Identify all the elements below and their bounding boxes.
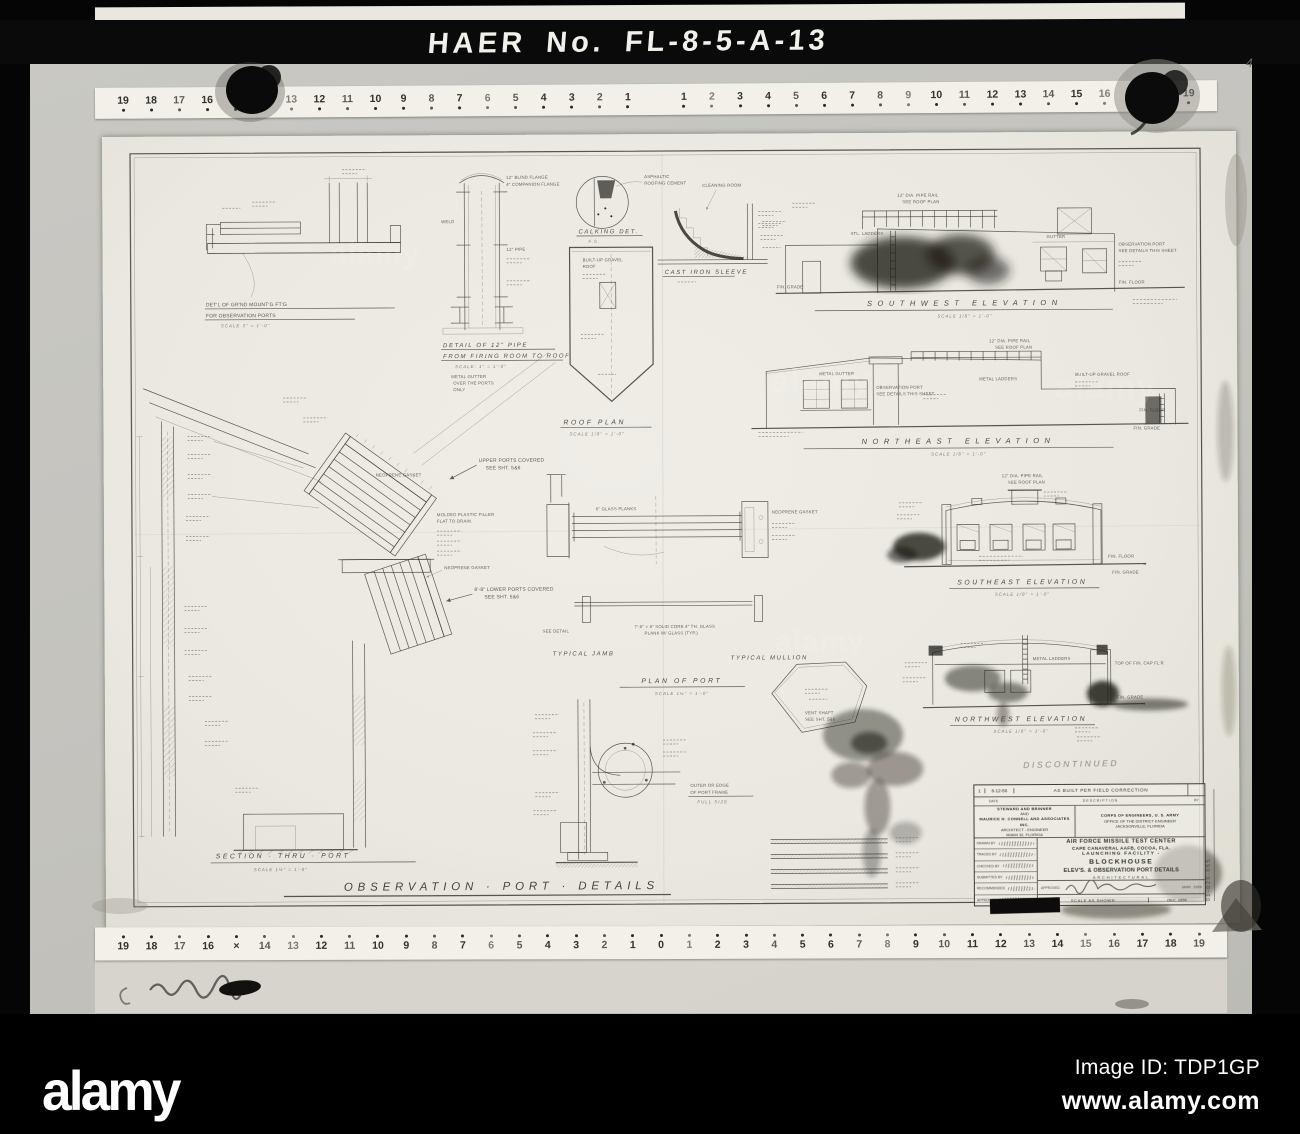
note-fin-floor-sw: FIN. FLOOR	[1119, 280, 1145, 285]
ruler-tick-dot	[542, 106, 545, 109]
note-gutter: GUTTER	[1046, 234, 1065, 239]
ruler-tick-dot	[234, 108, 237, 111]
ruler-tick-dot	[829, 934, 832, 937]
note-see-details-ne: SEE DETAILS THIS SHEET	[876, 391, 934, 396]
pipe-detail-title-1: DETAIL OF 12" PIPE	[443, 343, 528, 349]
ruler-tick-dot	[1169, 933, 1172, 936]
ruler-tick-dot	[682, 105, 685, 108]
ruler-number: 19	[1175, 87, 1203, 104]
note-upper-ports-covered: UPPER PORTS COVERED	[479, 458, 545, 464]
note-full-size: FULL SIZE	[697, 799, 728, 804]
plan-of-port: 6" GLASS PLANKS NEOPRENE GASKET SEE DETA…	[542, 473, 819, 696]
note-neoprene-plan: NEOPRENE GASKET	[772, 509, 818, 514]
ruler-number: 3	[558, 91, 586, 108]
ruler-number: 5	[782, 90, 810, 107]
ruler-tick-dot	[914, 933, 917, 936]
ruler-number: 14	[251, 935, 279, 952]
ruler-number: 7	[845, 933, 873, 950]
ruler-tick-dot	[376, 935, 379, 938]
ruler-tick-dot	[626, 105, 629, 108]
signature-row: TRACED BY	[975, 849, 1037, 861]
ruler-tick-dot	[886, 933, 889, 936]
ruler-number: 17	[166, 935, 194, 952]
ruler-tick-dot	[603, 934, 606, 937]
ruler-tick-dot	[430, 107, 433, 110]
corner-pencil-mark: 4	[1246, 56, 1253, 70]
ruler-number: 9	[902, 933, 930, 950]
ruler-tick-dot	[991, 103, 994, 106]
ruler-number: 10	[361, 93, 389, 110]
note-vent-shaft: VENT SHAFT	[805, 710, 834, 715]
ruler-number: 9	[389, 93, 417, 110]
ruler-tick-dot	[262, 108, 265, 111]
signature-scribble	[1007, 886, 1035, 891]
ruler-tick-dot	[1198, 933, 1201, 936]
ruler-number: 13	[277, 93, 305, 110]
ruler-number: 10	[922, 89, 950, 106]
note-upper-see-sheet: SEE SHT. 5&6	[486, 465, 521, 471]
sheet-main-title: OBSERVATION · PORT · DETAILS	[344, 880, 659, 894]
note-lower-ports-covered: 8'-8" LOWER PORTS COVERED	[474, 587, 554, 593]
photo-scale-ruler-bottom: 19181716×1413121110987654321012345678910…	[95, 925, 1227, 961]
signature-scribble	[999, 852, 1035, 857]
ground-detail-title-1: DET'L OF GR'ND MOUNT'G FT'G	[206, 302, 287, 308]
ruler-tick-dot	[1159, 101, 1162, 104]
ruler-tick-dot	[1113, 933, 1116, 936]
ruler-number: 11	[335, 935, 363, 952]
plan-of-port-scale: SCALE 1½" = 1'-0"	[655, 691, 709, 696]
note-6in-glass-planks: 6" GLASS PLANKS	[596, 506, 637, 511]
ruler-number: 4	[760, 934, 788, 951]
ruler-number: 16	[1091, 88, 1119, 105]
calking-scale: F.S.	[588, 239, 600, 244]
revision-date: 6-12-56	[985, 788, 1014, 793]
ruler-number: 17	[165, 94, 193, 111]
cast-iron-sleeve-title: CAST IRON SLEEVE	[665, 270, 748, 276]
note-weld: WELD	[441, 219, 454, 224]
ruler-tick-dot	[801, 934, 804, 937]
ground-mount-detail: DET'L OF GR'ND MOUNT'G FT'G FOR OBSERVAT…	[204, 169, 401, 328]
signature-row: RECOMMENDED	[975, 883, 1037, 895]
ruler-number: 5	[505, 934, 533, 951]
ruler-number: 4	[534, 934, 562, 951]
ruler-tick-dot	[405, 935, 408, 938]
blueprint-sheet: DET'L OF GR'ND MOUNT'G FT'G FOR OBSERVAT…	[102, 131, 1240, 929]
note-only: ONLY	[453, 387, 465, 392]
note-roof: ROOF	[583, 264, 596, 269]
note-fin-grade-sw: FIN. GRADE	[777, 284, 804, 289]
note-roofing-cement: ROOFING CEMENT	[644, 180, 686, 185]
port-corner-detail: OUTER OR EDGE OF PORT FRAME FULL SIZE	[533, 699, 754, 868]
northeast-elevation: 12" DIA. PIPE RAIL SEE ROOF PLAN METAL G…	[751, 337, 1189, 457]
note-metal-gutter-ne: METAL GUTTER	[819, 371, 854, 376]
northwest-elevation: METAL LADDERS TOP OF FIN. CAP FL'R FIN. …	[903, 634, 1189, 741]
ruler-number: 6	[817, 934, 845, 951]
section-thru-port-scale: SCALE 1½" = 1'-0"	[254, 867, 308, 872]
signature-scribble	[1002, 863, 1035, 868]
ruler-number: 1	[675, 934, 703, 951]
ruler-number: 18	[1147, 87, 1175, 104]
ruler-number: 8	[417, 92, 445, 109]
note-built-up-gravel-roof: BUILT-UP GRAVEL ROOF	[1075, 372, 1130, 377]
signature-row: DRAWN BY	[975, 838, 1037, 850]
note-fin-grade-ne: FIN. GRADE	[1133, 425, 1160, 430]
note-pipe-rail-ne: 12" DIA. PIPE RAIL	[989, 338, 1031, 343]
ruler-number: 18	[137, 935, 165, 952]
note-see-roof-plan-se: SEE ROOF PLAN	[1008, 480, 1045, 485]
ruler-tick-dot	[122, 109, 125, 112]
note-glass-core-2: PLANK W/ GLASS (TYP.)	[645, 630, 699, 635]
ruler-number: 12	[978, 89, 1006, 106]
signature-scribble	[1005, 875, 1035, 880]
ruler-number: 4	[754, 90, 782, 107]
ruler-tick-dot	[879, 103, 882, 106]
scanned-drawing-photo: 1918171615141312111098765432112345678910…	[0, 0, 1300, 1134]
project-line-6: ARCHITECTURAL	[1038, 874, 1205, 880]
ruler-number: 1	[614, 91, 642, 108]
photo-bottom-margin	[95, 959, 1227, 1013]
ground-detail-scale: SCALE 3" = 1'-0"	[221, 323, 270, 328]
ruler-number: 6	[810, 90, 838, 107]
southeast-elevation-title: SOUTHEAST ELEVATION	[957, 579, 1087, 587]
ruler-tick-dot	[963, 103, 966, 106]
southwest-elevation-title: SOUTHWEST ELEVATION	[867, 298, 1063, 308]
signature-row: CHECKED BY	[975, 861, 1037, 873]
header-by: BY	[1188, 798, 1204, 802]
note-glass-core-1: 7'-6" × 8" SOLID CORE 4" TH. GLASS	[634, 624, 715, 629]
note-see-roof-plan-sw: SEE ROOF PLAN	[902, 199, 939, 204]
ruler-number: 15	[221, 94, 249, 111]
ruler-tick-dot	[575, 934, 578, 937]
note-pipe-rail-sw: 12" DIA. PIPE RAIL	[897, 193, 939, 198]
note-companion-flange: 4" COMPANION FLANGE	[506, 182, 560, 187]
signature-scribble	[997, 841, 1034, 846]
note-cleaning-room: CLEANING ROOM	[702, 183, 741, 188]
ruler-tick-dot	[486, 106, 489, 109]
ruler-tick-dot	[346, 107, 349, 110]
ruler-number: 3	[562, 934, 590, 951]
ruler-tick-dot	[263, 935, 266, 938]
note-neoprene-upper: NEOPRENE GASKET	[376, 472, 422, 477]
note-12in-pipe: 12" PIPE	[507, 247, 526, 252]
note-fin-grade-nw: FIN. GRADE	[1117, 695, 1144, 700]
ruler-number: 19	[1185, 933, 1213, 950]
ruler-number: 5	[502, 92, 530, 109]
ruler-tick-dot	[1019, 102, 1022, 105]
ruler-tick-dot	[290, 108, 293, 111]
header-date: DATE	[974, 799, 1012, 803]
ruler-tick-dot	[150, 109, 153, 112]
note-metal-ladders-nw: METAL LADDERS	[1033, 656, 1071, 661]
ruler-number: 2	[586, 91, 614, 108]
ruler-tick-dot	[348, 935, 351, 938]
southeast-elevation-scale: SCALE 1/8" = 1'-0"	[995, 592, 1050, 597]
section-thru-port-title: SECTION · THRU · PORT	[216, 853, 351, 861]
architect-firm-block: STEWARD AND BRINNER AND MAURICE H. CONNE…	[974, 806, 1075, 838]
ruler-number: 12	[987, 933, 1015, 950]
ruler-number: 11	[958, 933, 986, 950]
ruler-number: 16	[193, 94, 221, 111]
roof-plan-title: ROOF PLAN	[563, 419, 626, 426]
ruler-tick-dot	[235, 935, 238, 938]
approved-date: MAR. 1956	[1182, 885, 1202, 890]
northeast-elevation-scale: SCALE 1/8" = 1'-0"	[931, 451, 986, 456]
note-see-detail: SEE DETAIL	[543, 629, 570, 634]
ruler-number: 10	[364, 935, 392, 952]
signature-row: SUBMITTED BY	[975, 872, 1037, 884]
ruler-number: 16	[194, 935, 222, 952]
note-over-the-ports: OVER THE PORTS	[453, 380, 494, 385]
ruler-tick-dot	[1028, 933, 1031, 936]
alamy-logo: alamy	[42, 1058, 179, 1123]
ruler-number: 8	[866, 89, 894, 106]
plan-of-port-title: PLAN OF PORT	[641, 678, 722, 685]
note-molded-plastic: MOLDED PLASTIC FILLER	[437, 512, 494, 517]
header-description: DESCRIPTION	[1012, 798, 1188, 803]
ruler-number: 11	[333, 93, 361, 110]
ground-detail-title-2: FOR OBSERVATION PORTS	[206, 313, 276, 319]
note-top-cap-floor: TOP OF FIN. CAP FL'R	[1115, 660, 1164, 665]
note-pipe-rail-se: 12" DIA. PIPE RAIL	[1002, 473, 1044, 478]
southwest-elevation: 12" DIA. PIPE RAIL SEE ROOF PLAN STL. LA…	[762, 191, 1185, 319]
ruler-number: 14	[249, 94, 277, 111]
note-fin-grade-se: FIN. GRADE	[1112, 570, 1139, 575]
approved-signature	[1062, 881, 1172, 895]
agency-line: JACKSONVILLE, FLORIDA	[1076, 824, 1205, 830]
pipe-riser-detail: 12" BLIND FLANGE 4" COMPANION FLANGE WEL…	[440, 173, 570, 392]
ruler-number: 13	[1015, 933, 1043, 950]
ruler-number: 8	[873, 933, 901, 950]
flashing-detail: CLEANING ROOM CAST IRON SLEEVE	[657, 182, 785, 282]
revision-by-cell	[1187, 784, 1204, 795]
ruler-tick-dot	[598, 105, 601, 108]
ruler-tick-dot	[739, 104, 742, 107]
ruler-number: 18	[1157, 933, 1185, 950]
ruler-number: 2	[698, 91, 726, 108]
ruler-number: 6	[474, 92, 502, 109]
ruler-tick-dot	[150, 935, 153, 938]
note-fin-floor-ne: FIN. FLOOR	[1139, 407, 1165, 412]
ruler-tick-dot	[745, 934, 748, 937]
firm-line: MIAMI 32, FLORIDA	[975, 832, 1075, 838]
note-metal-gutter: METAL GUTTER	[451, 374, 486, 379]
stain-smudge	[823, 709, 924, 878]
ruler-number: 9	[392, 935, 420, 952]
ruler-number: 12	[307, 935, 335, 952]
revision-header-row: DATE DESCRIPTION BY	[974, 796, 1204, 806]
note-built-up-gravel: BUILT-UP GRAVEL	[583, 257, 624, 262]
ruler-number: 0	[647, 934, 675, 951]
ruler-number: 11	[950, 89, 978, 106]
ruler-tick-dot	[1141, 933, 1144, 936]
ruler-number: 9	[894, 89, 922, 106]
ruler-tick-dot	[1103, 102, 1106, 105]
ruler-tick-dot	[402, 107, 405, 110]
note-asphaltic: ASPHALTIC	[644, 174, 669, 179]
ruler-tick-dot	[318, 107, 321, 110]
ruler-tick-dot	[490, 934, 493, 937]
ruler-tick-dot	[1084, 933, 1087, 936]
ruler-tick-dot	[292, 935, 295, 938]
approved-row: APPROVED MAR. 1956	[1038, 879, 1205, 894]
ruler-number: 15	[1072, 933, 1100, 950]
ruler-tick-dot	[546, 934, 549, 937]
ruler-tick-dot	[320, 935, 323, 938]
note-stl-ladders: STL. LADDERS	[850, 231, 883, 236]
ruler-tick-dot	[461, 935, 464, 938]
roof-plan: BUILT-UP GRAVEL ROOF ROOF PLAN SCALE 1/8…	[560, 247, 654, 436]
ruler-number: 6	[477, 934, 505, 951]
calking-detail: ASPHALTIC ROOFING CEMENT CALKING DET. F.…	[576, 174, 687, 244]
ruler-tick-dot	[1056, 933, 1059, 936]
ruler-number: 7	[446, 92, 474, 109]
typical-jamb-title: TYPICAL JAMB	[553, 651, 615, 657]
ruler-tick-dot	[660, 934, 663, 937]
pipe-detail-scale: SCALE: 1" = 1'-0"	[455, 364, 507, 369]
ruler-tick-dot	[570, 106, 573, 109]
agency-block: CORPS OF ENGINEERS, U. S. ARMY OFFICE OF…	[1075, 805, 1204, 837]
revision-number: 1	[974, 788, 985, 793]
ruler-number: 7	[449, 934, 477, 951]
note-lower-see-sheet: SEE SHT. 5&6	[484, 594, 519, 600]
alamy-footer-bar: alamy Image ID: TDP1GP www.alamy.com	[0, 1014, 1300, 1134]
ruler-tick-dot	[207, 935, 210, 938]
pipe-detail-title-2: FROM FIRING ROOM TO ROOF	[443, 354, 570, 361]
northwest-elevation-title: NORTHWEST ELEVATION	[955, 716, 1087, 724]
ruler-tick-dot	[518, 934, 521, 937]
approved-label: APPROVED	[1041, 886, 1060, 890]
haer-number: HAER No. FL-8-5-A-13	[426, 24, 829, 60]
ruler-number: 10	[930, 933, 958, 950]
ruler-tick-dot	[514, 106, 517, 109]
drawing-number-strip: 01-020-065	[1205, 789, 1215, 901]
ruler-tick-dot	[935, 103, 938, 106]
ruler-number: 14	[1034, 88, 1062, 105]
ruler-tick-dot	[178, 108, 181, 111]
note-metal-ladders-ne: METAL LADDERS	[979, 376, 1017, 381]
firm-line: MAURICE H. CONNELL AND ASSOCIATES INC.	[975, 816, 1075, 827]
ruler-number: 19	[109, 935, 137, 952]
blacked-out-stamp	[990, 897, 1060, 914]
ruler-number: 2	[704, 934, 732, 951]
ruler-number: 3	[726, 90, 754, 107]
ruler-tick-dot	[971, 933, 974, 936]
ruler-tick-dot	[716, 934, 719, 937]
note-see-roof-plan-ne: SEE ROOF PLAN	[995, 345, 1032, 350]
ruler-tick-dot	[858, 933, 861, 936]
note-outer-edge-2: OF PORT FRAME	[690, 790, 728, 795]
ruler-number: 16	[1100, 933, 1128, 950]
ruler-tick-dot	[773, 934, 776, 937]
roof-plan-scale: SCALE 1/8" = 1'-0"	[569, 431, 624, 436]
ruler-tick-dot	[943, 933, 946, 936]
ruler-tick-dot	[795, 104, 798, 107]
ruler-tick-dot	[1131, 102, 1134, 105]
calking-title: CALKING DET.	[578, 229, 638, 235]
southwest-elevation-scale: SCALE 1/8" = 1'-0"	[937, 313, 992, 318]
ruler-tick-dot	[907, 103, 910, 106]
ruler-tick-dot	[710, 105, 713, 108]
ruler-number: 15	[1062, 88, 1090, 105]
ruler-number: 12	[305, 93, 333, 110]
typical-mullion-title: TYPICAL MULLION	[731, 655, 808, 661]
ruler-number: 17	[1128, 933, 1156, 950]
scale-row: SCALE AS SHOWN DEC. 1955	[1038, 894, 1205, 905]
northeast-elevation-title: NORTHEAST ELEVATION	[862, 436, 1056, 446]
ruler-number: 1	[670, 91, 698, 108]
ruler-tick-dot	[458, 106, 461, 109]
image-id-text: Image ID: TDP1GP	[1062, 1056, 1260, 1080]
ruler-number: 8	[420, 935, 448, 952]
ruler-tick-dot	[178, 935, 181, 938]
note-flat-to-drain: FLAT TO DRAIN	[437, 519, 471, 524]
ruler-number: 2	[590, 934, 618, 951]
ruler-tick-dot	[1075, 102, 1078, 105]
ruler-number: 4	[530, 92, 558, 109]
note-see-details-sw: SEE DETAILS THIS SHEET	[1119, 248, 1177, 253]
ruler-tick-dot	[999, 933, 1002, 936]
note-blind-flange: 12" BLIND FLANGE	[506, 175, 548, 180]
ruler-tick-dot	[688, 934, 691, 937]
northwest-elevation-scale: SCALE 1/8" = 1'-0"	[994, 729, 1049, 734]
revision-description: AS BUILT PER FIELD CORRECTION	[1014, 787, 1187, 793]
note-observation-port-ne: OBSERVATION PORT	[876, 385, 923, 390]
ruler-number: 19	[109, 95, 137, 112]
note-observation-port-sw: OBSERVATION PORT	[1118, 241, 1165, 246]
ruler-number: 13	[1006, 88, 1034, 105]
date-note: DEC. 1955	[1148, 897, 1205, 902]
ruler-number: ×	[222, 935, 250, 952]
ruler-number: 13	[279, 935, 307, 952]
ruler-tick-dot	[433, 935, 436, 938]
project-title-block: AIR FORCE MISSILE TEST CENTER CAPE CANAV…	[1038, 837, 1205, 880]
haer-header-band: HAER No. FL-8-5-A-13	[0, 20, 1300, 64]
ruler-number: 1	[619, 934, 647, 951]
ruler-number: 14	[1043, 933, 1071, 950]
ruler-tick-dot	[206, 108, 209, 111]
ruler-tick-dot	[374, 107, 377, 110]
ruler-tick-dot	[1187, 101, 1190, 104]
ruler-tick-dot	[823, 104, 826, 107]
ruler-number: 18	[137, 94, 165, 111]
note-fin-floor-se: FIN. FLOOR	[1108, 554, 1134, 559]
note-outer-edge-1: OUTER OR EDGE	[690, 783, 729, 788]
ruler-number: 5	[788, 934, 816, 951]
title-block: 1 6-12-56 AS BUILT PER FIELD CORRECTION …	[973, 783, 1206, 906]
ruler-tick-dot	[851, 104, 854, 107]
ruler-tick-dot	[1047, 102, 1050, 105]
ruler-tick-dot	[767, 104, 770, 107]
ruler-tick-dot	[122, 935, 125, 938]
southeast-elevation: 12" DIA. PIPE RAIL SEE ROOF PLAN FIN. FL…	[887, 473, 1147, 598]
note-neoprene-lower: NEOPRENE GASKET	[444, 565, 490, 570]
ruler-number: 3	[732, 934, 760, 951]
ruler-tick-dot	[631, 934, 634, 937]
ruler-number: 17	[1119, 88, 1147, 105]
ruler-number: 7	[838, 90, 866, 107]
alamy-url-text: www.alamy.com	[1062, 1087, 1260, 1116]
wall-legend	[771, 838, 920, 889]
signature-rows: DRAWN BY TRACED BY CHECKED BY SUBMITTED …	[975, 838, 1038, 905]
